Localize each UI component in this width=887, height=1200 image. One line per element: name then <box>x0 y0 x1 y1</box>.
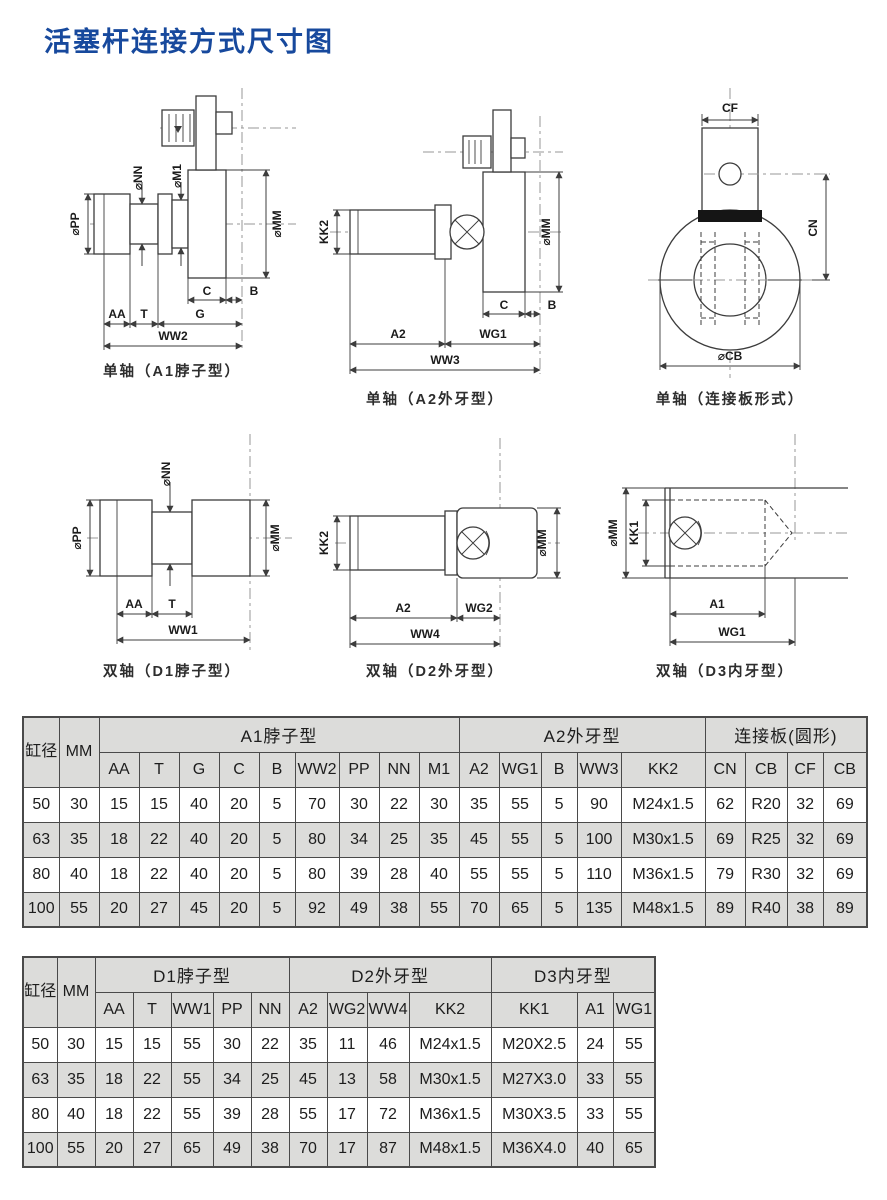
dim-label-mm: ⌀MM <box>268 524 282 551</box>
drawing-a1: ⌀PP ⌀NN ⌀M1 ⌀MM C B AA T G <box>42 82 302 354</box>
table-cell: R25 <box>745 822 787 857</box>
table-cell: 55 <box>499 822 541 857</box>
table-cell: M30x1.5 <box>409 1062 491 1097</box>
table-cell: 55 <box>289 1097 327 1132</box>
table-cell: 40 <box>179 787 219 822</box>
col-header: KK1 <box>491 992 577 1027</box>
table-cell: 69 <box>705 822 745 857</box>
table-cell: 35 <box>459 787 499 822</box>
table-cell: 69 <box>823 787 867 822</box>
drawing-d1: ⌀PP ⌀NN ⌀MM AA T WW1 <box>42 428 302 654</box>
table-cell: 135 <box>577 892 621 927</box>
col-header: CB <box>823 752 867 787</box>
dim-label-pp: ⌀PP <box>70 526 84 549</box>
dim-label-b: B <box>548 298 557 312</box>
table-cell: 5 <box>541 787 577 822</box>
table-cell: 35 <box>289 1027 327 1062</box>
table-cell: 80 <box>23 857 59 892</box>
table-cell: 55 <box>499 787 541 822</box>
col-header: PP <box>213 992 251 1027</box>
table-cell: 20 <box>219 822 259 857</box>
table-cell: 30 <box>339 787 379 822</box>
table-cell: 40 <box>57 1097 95 1132</box>
group-header-d3: D3内牙型 <box>491 957 655 992</box>
table-cell: 5 <box>259 822 295 857</box>
dim-label-nn: ⌀NN <box>131 166 145 191</box>
table-cell: R40 <box>745 892 787 927</box>
table-cell: 63 <box>23 822 59 857</box>
table-cell: 28 <box>251 1097 289 1132</box>
table-cell: 18 <box>99 822 139 857</box>
table-cell: 18 <box>99 857 139 892</box>
table-cell: 55 <box>459 857 499 892</box>
table-cell: 55 <box>499 857 541 892</box>
table-cell: 39 <box>339 857 379 892</box>
table-cell: 40 <box>179 857 219 892</box>
col-header: KK2 <box>621 752 705 787</box>
dim-label-pp: ⌀PP <box>68 212 82 235</box>
col-header: NN <box>251 992 289 1027</box>
table-cell: M30X3.5 <box>491 1097 577 1132</box>
table-cell: 49 <box>213 1132 251 1167</box>
col-header: WW3 <box>577 752 621 787</box>
table-cell: 22 <box>133 1097 171 1132</box>
table-cell: 100 <box>23 1132 57 1167</box>
table-row: 63351822553425451358M30x1.5M27X3.03355 <box>23 1062 655 1097</box>
drawing-a2: KK2 ⌀MM C B A2 WG1 WW3 <box>295 82 575 382</box>
dim-label-mm: ⌀MM <box>539 218 553 245</box>
table-cell: 27 <box>139 892 179 927</box>
table-cell: R20 <box>745 787 787 822</box>
table-cell: 87 <box>367 1132 409 1167</box>
table-cell: 30 <box>213 1027 251 1062</box>
dim-label-a1: A1 <box>709 597 725 611</box>
table-cell: 55 <box>613 1062 655 1097</box>
diagram-single-a1-neck: ⌀PP ⌀NN ⌀M1 ⌀MM C B AA T G <box>42 82 302 381</box>
table-cell: 55 <box>171 1097 213 1132</box>
table-cell: 20 <box>99 892 139 927</box>
table-cell: 20 <box>219 892 259 927</box>
table-cell: 90 <box>577 787 621 822</box>
table-cell: 63 <box>23 1062 57 1097</box>
dim-label-mm: ⌀MM <box>535 529 549 556</box>
dim-label-kk2: KK2 <box>317 220 331 244</box>
table-cell: 40 <box>419 857 459 892</box>
col-header: T <box>139 752 179 787</box>
table-cell: 45 <box>179 892 219 927</box>
col-header: CB <box>745 752 787 787</box>
col-header: A2 <box>289 992 327 1027</box>
dim-label-cf: CF <box>722 101 738 115</box>
table-cell: 34 <box>213 1062 251 1097</box>
col-header: B <box>259 752 295 787</box>
table-cell: 50 <box>23 1027 57 1062</box>
table-cell: 40 <box>179 822 219 857</box>
table-cell: 30 <box>57 1027 95 1062</box>
dim-label-m1: ⌀M1 <box>170 164 184 188</box>
col-header-mm: MM <box>59 717 99 787</box>
dim-label-nn: ⌀NN <box>159 462 173 487</box>
dim-label-wg2: WG2 <box>465 601 493 615</box>
dim-label-cb: ⌀CB <box>718 349 743 363</box>
table-cell: 65 <box>613 1132 655 1167</box>
diagram-single-a2-thread: KK2 ⌀MM C B A2 WG1 WW3 单轴（A2外牙型） <box>295 82 575 409</box>
col-header-bore: 缸径 <box>23 957 57 1027</box>
table-cell: 100 <box>23 892 59 927</box>
dim-label-wg1: WG1 <box>479 327 507 341</box>
table-cell: 39 <box>213 1097 251 1132</box>
caption-d2: 双轴（D2外牙型） <box>295 660 575 681</box>
datasheet-page: 活塞杆连接方式尺寸图 ⌀P <box>0 0 887 1200</box>
table-body: 5030151540205703022303555590M24x1.562R20… <box>23 787 867 927</box>
dim-label-mm: ⌀MM <box>606 519 620 546</box>
table-cell: M48x1.5 <box>409 1132 491 1167</box>
group-header-a2: A2外牙型 <box>459 717 705 752</box>
drawing-d3: ⌀MM KK1 A1 WG1 <box>580 428 870 654</box>
table-group-header-row: 缸径 MM D1脖子型 D2外牙型 D3内牙型 <box>23 957 655 992</box>
col-header: WG1 <box>499 752 541 787</box>
group-header-d1: D1脖子型 <box>95 957 289 992</box>
table-cell: 15 <box>133 1027 171 1062</box>
dim-label-aa: AA <box>125 597 143 611</box>
dim-label-a2: A2 <box>390 327 406 341</box>
table-subheader-row: AA T G C B WW2 PP NN M1 A2 WG1 B WW3 KK2… <box>23 752 867 787</box>
drawing-plate: CF CN ⌀CB <box>590 82 870 382</box>
table-cell: 15 <box>139 787 179 822</box>
dim-label-aa: AA <box>108 307 126 321</box>
table-cell: 13 <box>327 1062 367 1097</box>
col-header: NN <box>379 752 419 787</box>
table-cell: 20 <box>95 1132 133 1167</box>
table-cell: 38 <box>379 892 419 927</box>
dim-label-cn: CN <box>806 219 820 236</box>
table-cell: 55 <box>419 892 459 927</box>
table-cell: 65 <box>171 1132 213 1167</box>
table-cell: 79 <box>705 857 745 892</box>
table-cell: 15 <box>99 787 139 822</box>
diagram-single-plate: CF CN ⌀CB 单轴（连接板形式） <box>590 82 870 409</box>
table-cell: 17 <box>327 1097 367 1132</box>
table-cell: M48x1.5 <box>621 892 705 927</box>
table-cell: 55 <box>57 1132 95 1167</box>
col-header: A2 <box>459 752 499 787</box>
caption-plate: 单轴（连接板形式） <box>590 388 870 409</box>
dim-label-ww1: WW1 <box>168 623 198 637</box>
table-cell: 5 <box>259 857 295 892</box>
table-cell: M24x1.5 <box>409 1027 491 1062</box>
table-cell: R30 <box>745 857 787 892</box>
table-body: 50301515553022351146M24x1.5M20X2.5245563… <box>23 1027 655 1167</box>
col-header: WG2 <box>327 992 367 1027</box>
table-row: 80401822553928551772M36x1.5M30X3.53355 <box>23 1097 655 1132</box>
table-cell: 40 <box>577 1132 613 1167</box>
col-header: T <box>133 992 171 1027</box>
table-cell: 22 <box>133 1062 171 1097</box>
col-header: PP <box>339 752 379 787</box>
table-cell: 80 <box>295 857 339 892</box>
table-cell: 92 <box>295 892 339 927</box>
table-cell: 35 <box>419 822 459 857</box>
table-cell: 100 <box>577 822 621 857</box>
table-cell: 18 <box>95 1097 133 1132</box>
table-cell: 34 <box>339 822 379 857</box>
dim-label-wg1: WG1 <box>718 625 746 639</box>
table-cell: 65 <box>499 892 541 927</box>
col-header: AA <box>95 992 133 1027</box>
table-cell: 15 <box>95 1027 133 1062</box>
col-header-bore: 缸径 <box>23 717 59 787</box>
caption-a1: 单轴（A1脖子型） <box>42 360 302 381</box>
table-cell: 72 <box>367 1097 409 1132</box>
table-cell: M30x1.5 <box>621 822 705 857</box>
table-cell: 35 <box>57 1062 95 1097</box>
table-subheader-row: AA T WW1 PP NN A2 WG2 WW4 KK2 KK1 A1 WG1 <box>23 992 655 1027</box>
dim-label-mm: ⌀MM <box>270 210 284 237</box>
table-cell: 33 <box>577 1062 613 1097</box>
dim-label-ww2: WW2 <box>158 329 188 343</box>
table-cell: 11 <box>327 1027 367 1062</box>
table-d-series: 缸径 MM D1脖子型 D2外牙型 D3内牙型 AA T WW1 PP NN A… <box>22 956 656 1168</box>
table-cell: 28 <box>379 857 419 892</box>
table-cell: 24 <box>577 1027 613 1062</box>
col-header: AA <box>99 752 139 787</box>
group-header-plate: 连接板(圆形) <box>705 717 867 752</box>
table-cell: 5 <box>259 787 295 822</box>
col-header: A1 <box>577 992 613 1027</box>
dim-label-c: C <box>203 284 212 298</box>
dim-label-g: G <box>195 307 204 321</box>
diagram-double-d2-thread: KK2 ⌀MM A2 WG2 WW4 双轴（D2外牙型） <box>295 428 575 681</box>
table-cell: 33 <box>577 1097 613 1132</box>
col-header: WW4 <box>367 992 409 1027</box>
caption-a2: 单轴（A2外牙型） <box>295 388 575 409</box>
table-group-header-row: 缸径 MM A1脖子型 A2外牙型 连接板(圆形) <box>23 717 867 752</box>
page-title: 活塞杆连接方式尺寸图 <box>44 20 334 59</box>
dim-label-ww3: WW3 <box>430 353 460 367</box>
table-cell: 18 <box>95 1062 133 1097</box>
dim-label-kk1: KK1 <box>627 521 641 545</box>
table-cell: 110 <box>577 857 621 892</box>
table-cell: 80 <box>295 822 339 857</box>
diagram-double-d3-internal: ⌀MM KK1 A1 WG1 双轴（D3内牙型） <box>580 428 870 681</box>
table-cell: 69 <box>823 822 867 857</box>
dim-label-t: T <box>168 597 176 611</box>
col-header: C <box>219 752 259 787</box>
table-cell: 55 <box>613 1097 655 1132</box>
drawing-d2: KK2 ⌀MM A2 WG2 WW4 <box>295 428 575 654</box>
table-cell: 5 <box>541 857 577 892</box>
table-cell: 22 <box>139 857 179 892</box>
table-cell: 30 <box>419 787 459 822</box>
dim-label-t: T <box>140 307 148 321</box>
table-cell: 45 <box>289 1062 327 1097</box>
col-header: CF <box>787 752 823 787</box>
table-cell: 30 <box>59 787 99 822</box>
table-cell: 58 <box>367 1062 409 1097</box>
table-cell: M36x1.5 <box>621 857 705 892</box>
col-header: WW2 <box>295 752 339 787</box>
table-cell: 5 <box>541 892 577 927</box>
table-cell: 22 <box>139 822 179 857</box>
table-cell: 5 <box>259 892 295 927</box>
table-cell: 89 <box>705 892 745 927</box>
table-row: 80401822402058039284055555110M36x1.579R3… <box>23 857 867 892</box>
table-cell: 17 <box>327 1132 367 1167</box>
table-cell: 35 <box>59 822 99 857</box>
table-row: 5030151540205703022303555590M24x1.562R20… <box>23 787 867 822</box>
dim-label-ww4: WW4 <box>410 627 440 641</box>
caption-d1: 双轴（D1脖子型） <box>42 660 302 681</box>
col-header: KK2 <box>409 992 491 1027</box>
table-row: 100552027452059249385570655135M48x1.589R… <box>23 892 867 927</box>
table-cell: M20X2.5 <box>491 1027 577 1062</box>
table-cell: 70 <box>295 787 339 822</box>
table-row: 100552027654938701787M48x1.5M36X4.04065 <box>23 1132 655 1167</box>
table-cell: 70 <box>289 1132 327 1167</box>
col-header: WW1 <box>171 992 213 1027</box>
dim-label-kk2: KK2 <box>317 531 331 555</box>
dim-label-b: B <box>250 284 259 298</box>
table-cell: 20 <box>219 857 259 892</box>
table-cell: 32 <box>787 857 823 892</box>
table-cell: 55 <box>59 892 99 927</box>
table-cell: M36X4.0 <box>491 1132 577 1167</box>
table-cell: 70 <box>459 892 499 927</box>
group-header-a1: A1脖子型 <box>99 717 459 752</box>
table-cell: M36x1.5 <box>409 1097 491 1132</box>
caption-d3: 双轴（D3内牙型） <box>580 660 870 681</box>
table-cell: 62 <box>705 787 745 822</box>
table-a-series: 缸径 MM A1脖子型 A2外牙型 连接板(圆形) AA T G C B WW2… <box>22 716 868 928</box>
table-cell: 27 <box>133 1132 171 1167</box>
col-header: G <box>179 752 219 787</box>
table-cell: 32 <box>787 822 823 857</box>
dim-label-c: C <box>500 298 509 312</box>
table-cell: 25 <box>379 822 419 857</box>
table-cell: M24x1.5 <box>621 787 705 822</box>
table-cell: 55 <box>171 1062 213 1097</box>
table-cell: 38 <box>251 1132 289 1167</box>
table-cell: 50 <box>23 787 59 822</box>
table-cell: M27X3.0 <box>491 1062 577 1097</box>
col-header: M1 <box>419 752 459 787</box>
table-cell: 38 <box>787 892 823 927</box>
col-header: B <box>541 752 577 787</box>
table-cell: 89 <box>823 892 867 927</box>
table-cell: 22 <box>251 1027 289 1062</box>
col-header: WG1 <box>613 992 655 1027</box>
table-row: 50301515553022351146M24x1.5M20X2.52455 <box>23 1027 655 1062</box>
table-cell: 55 <box>171 1027 213 1062</box>
diagram-double-d1-neck: ⌀PP ⌀NN ⌀MM AA T WW1 双轴（D1脖子型） <box>42 428 302 681</box>
table-row: 63351822402058034253545555100M30x1.569R2… <box>23 822 867 857</box>
table-cell: 40 <box>59 857 99 892</box>
group-header-d2: D2外牙型 <box>289 957 491 992</box>
table-cell: 22 <box>379 787 419 822</box>
table-cell: 69 <box>823 857 867 892</box>
table-cell: 32 <box>787 787 823 822</box>
dim-label-a2: A2 <box>395 601 411 615</box>
table-cell: 80 <box>23 1097 57 1132</box>
table-cell: 5 <box>541 822 577 857</box>
table-cell: 20 <box>219 787 259 822</box>
table-cell: 55 <box>613 1027 655 1062</box>
col-header-mm: MM <box>57 957 95 1027</box>
table-cell: 45 <box>459 822 499 857</box>
table-cell: 49 <box>339 892 379 927</box>
col-header: CN <box>705 752 745 787</box>
table-cell: 46 <box>367 1027 409 1062</box>
table-cell: 25 <box>251 1062 289 1097</box>
